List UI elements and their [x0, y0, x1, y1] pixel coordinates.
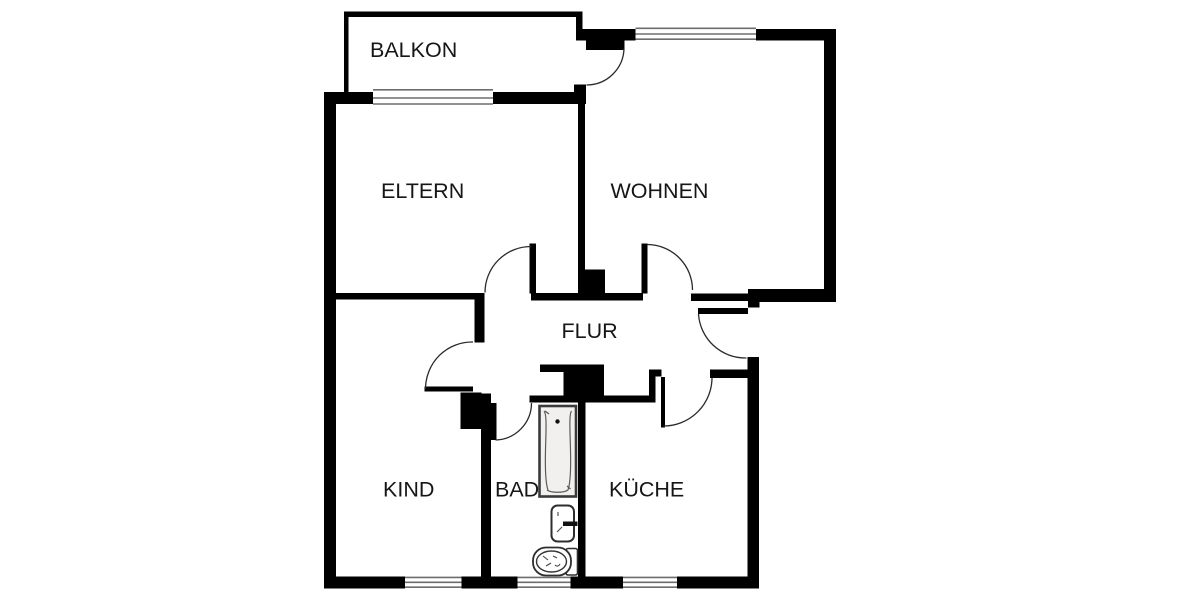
svg-text:ELTERN: ELTERN — [381, 179, 464, 203]
svg-text:WOHNEN: WOHNEN — [611, 179, 709, 203]
svg-text:BAD: BAD — [495, 478, 539, 502]
svg-text:BALKON: BALKON — [370, 38, 457, 62]
svg-text:KIND: KIND — [383, 478, 434, 502]
svg-text:KÜCHE: KÜCHE — [609, 478, 684, 502]
svg-text:FLUR: FLUR — [562, 319, 618, 343]
